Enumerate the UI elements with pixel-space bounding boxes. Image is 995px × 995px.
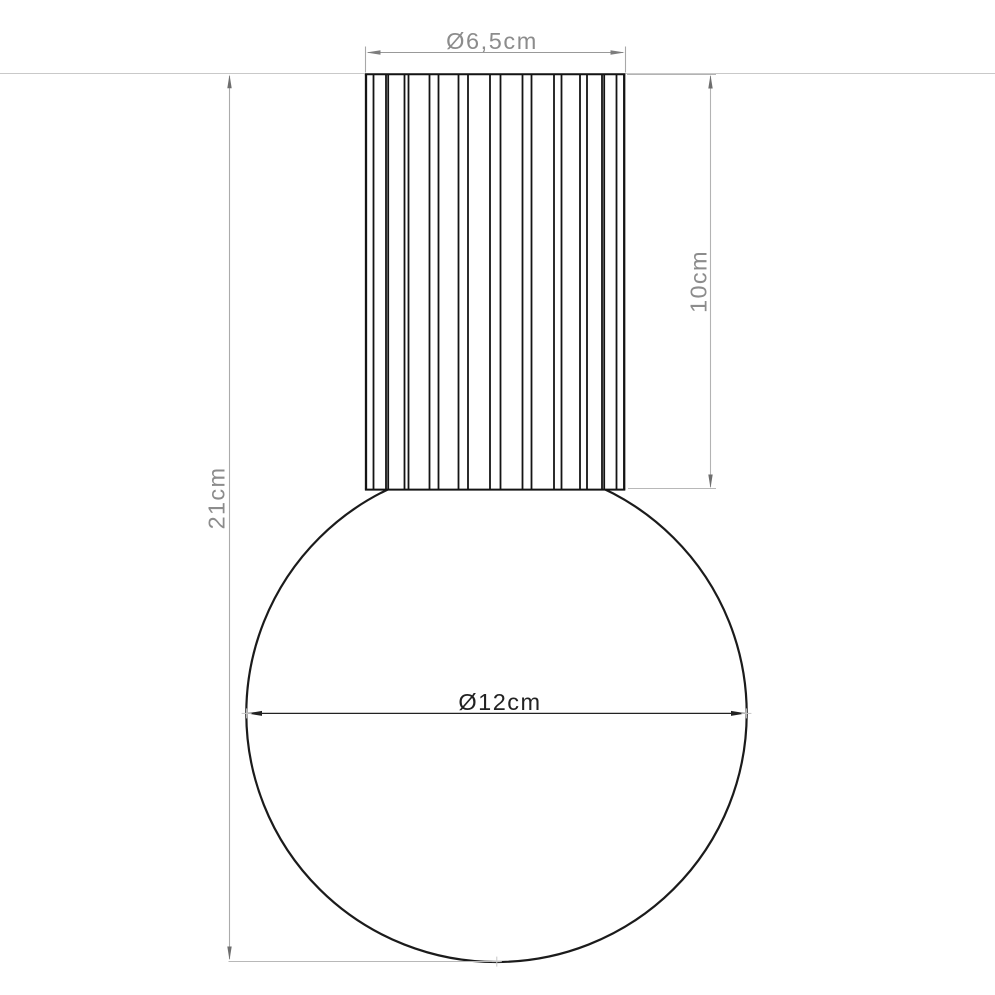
svg-text:Ø6,5cm: Ø6,5cm — [446, 28, 538, 54]
svg-text:21cm: 21cm — [204, 467, 230, 530]
svg-text:10cm: 10cm — [686, 250, 712, 313]
svg-text:Ø12cm: Ø12cm — [458, 689, 541, 715]
